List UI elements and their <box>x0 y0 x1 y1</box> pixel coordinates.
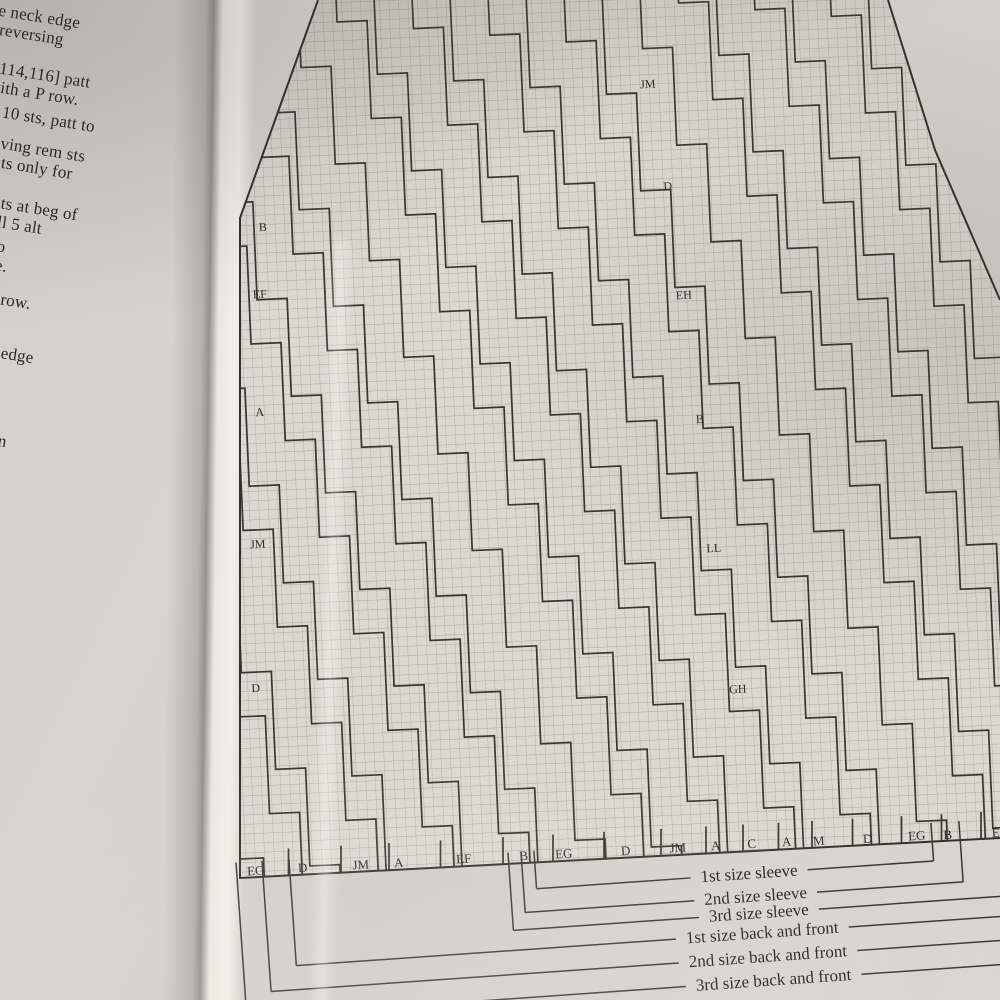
book-photo: de neck edget side, reversingtil 112[114… <box>0 0 1000 1000</box>
knitting-chart: JMDEHBLLGHBEFAJMDEGDJMAEFBEGDJMACAMDEGBE… <box>0 0 1000 1000</box>
size-key-drop <box>262 861 271 992</box>
size-key-rule <box>861 963 1000 974</box>
chart-band-label: D <box>251 681 261 695</box>
chart-band-label: EH <box>675 288 692 303</box>
chart-band-label: A <box>255 405 265 419</box>
chart-bottom-letter: D <box>298 860 308 876</box>
chart-bottom-letter: EF <box>456 851 472 867</box>
size-key-rule <box>819 895 1000 909</box>
chart-bottom-letter: B <box>943 827 953 843</box>
chart-bottom-letter: EG <box>555 845 573 861</box>
chart-band-label: EF <box>252 287 267 302</box>
chart-bottom-letter: E <box>991 825 1000 840</box>
size-key-rule <box>296 939 676 966</box>
chart-bottom-letter: C <box>747 836 757 852</box>
size-key-rule <box>817 882 963 892</box>
size-key-label: 3rd size back and front <box>695 965 852 995</box>
chart-band-label: GH <box>729 682 747 697</box>
chart-bottom-letter: A <box>394 855 405 871</box>
chart-bottom-letter: D <box>863 831 873 847</box>
chart-band-label: B <box>695 412 704 426</box>
chart-band-label: D <box>663 179 673 193</box>
size-key-rule <box>525 901 694 913</box>
chart-band-label: JM <box>250 537 266 552</box>
chart-bottom-letter: D <box>621 843 631 859</box>
chart-band-label: B <box>258 220 267 234</box>
size-key-drop <box>236 863 247 1000</box>
chart-bottom-letter: B <box>519 848 529 864</box>
chart-bottom-letter: JM <box>669 839 687 855</box>
size-key-rule <box>857 939 1000 950</box>
size-key-rule <box>849 915 1000 927</box>
chart-bottom-letter: M <box>812 833 825 849</box>
chart-band-label: JM <box>640 77 656 92</box>
size-key-label: 1st size sleeve <box>700 860 798 886</box>
chart-bottom-letter: EG <box>908 827 926 843</box>
size-key-rule <box>513 917 699 930</box>
chart-bottom-letter: A <box>782 834 793 850</box>
size-key-rule <box>537 878 691 889</box>
chart-bottom-letter: JM <box>352 856 370 872</box>
chart-bottom-letter: A <box>711 838 722 854</box>
chart-band-label: LL <box>706 541 721 556</box>
size-key-rule <box>808 861 934 870</box>
